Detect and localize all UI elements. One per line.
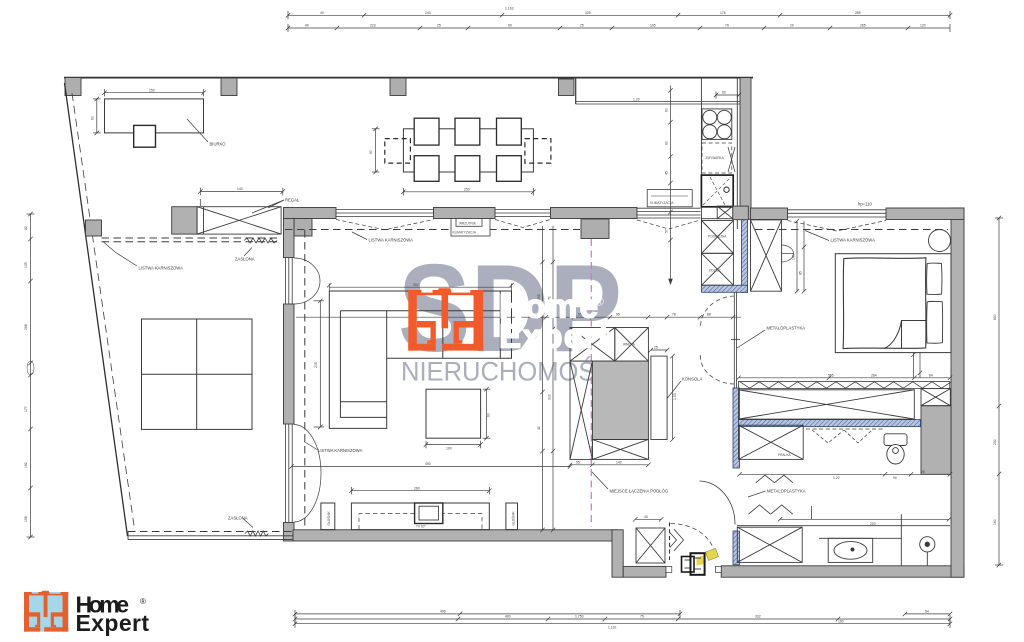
svg-text:85: 85 (799, 271, 803, 275)
svg-text:REGAŁ: REGAŁ (285, 198, 300, 203)
svg-text:40: 40 (320, 11, 324, 15)
svg-text:LISTWA KARNISZOWA: LISTWA KARNISZOWA (831, 238, 876, 243)
svg-text:490: 490 (505, 615, 511, 619)
svg-text:60: 60 (665, 108, 669, 112)
svg-text:40: 40 (644, 515, 648, 519)
svg-text:95: 95 (616, 313, 620, 317)
svg-text:20: 20 (790, 24, 794, 28)
svg-text:90: 90 (508, 24, 512, 28)
svg-text:1.163: 1.163 (505, 7, 514, 11)
svg-text:260: 260 (414, 487, 420, 491)
svg-text:26: 26 (921, 470, 925, 474)
svg-text:160: 160 (993, 519, 997, 525)
svg-text:595: 595 (828, 373, 834, 377)
svg-text:60: 60 (487, 413, 491, 417)
svg-text:90: 90 (893, 476, 897, 480)
svg-text:60: 60 (722, 91, 726, 95)
svg-text:METALOPLASTYKA: METALOPLASTYKA (767, 326, 806, 331)
svg-text:75: 75 (640, 615, 644, 619)
svg-text:332: 332 (755, 615, 761, 619)
svg-text:496: 496 (440, 610, 446, 614)
svg-text:150: 150 (149, 89, 155, 93)
svg-text:ODZIEŻ: ODZIEŻ (709, 268, 721, 273)
svg-text:490: 490 (425, 462, 431, 466)
svg-text:84: 84 (929, 373, 933, 377)
svg-text:1.22: 1.22 (833, 476, 840, 480)
svg-text:176: 176 (720, 11, 726, 15)
svg-text:54: 54 (925, 610, 929, 614)
svg-text:TV 60″: TV 60″ (416, 525, 427, 529)
svg-text:243: 243 (425, 11, 431, 15)
svg-text:177: 177 (24, 406, 28, 412)
svg-text:78: 78 (672, 313, 676, 317)
svg-text:165: 165 (650, 24, 656, 28)
svg-text:GŁOŚNIK: GŁOŚNIK (511, 510, 516, 525)
svg-text:264: 264 (871, 373, 877, 377)
svg-text:223: 223 (370, 24, 376, 28)
svg-text:WRZUTNIK: WRZUTNIK (459, 222, 477, 226)
svg-text:230: 230 (993, 439, 997, 445)
svg-text:PRALKA: PRALKA (778, 453, 791, 457)
svg-text:60: 60 (91, 116, 95, 120)
svg-text:LISTWA KARNISZOWA: LISTWA KARNISZOWA (318, 448, 363, 453)
svg-text:325: 325 (585, 11, 591, 15)
svg-text:MIEJSCE ŁĄCZENIA PODŁÓG: MIEJSCE ŁĄCZENIA PODŁÓG (610, 489, 669, 494)
svg-text:WNĘKA: WNĘKA (623, 343, 636, 347)
svg-text:1.753: 1.753 (575, 615, 584, 619)
svg-text:25: 25 (580, 24, 584, 28)
svg-text:hp=110: hp=110 (858, 202, 872, 207)
svg-text:90: 90 (369, 150, 373, 154)
svg-text:650: 650 (993, 314, 997, 320)
svg-text:®: ® (595, 295, 604, 309)
svg-text:140: 140 (616, 460, 622, 464)
svg-text:BIURKO: BIURKO (210, 142, 227, 147)
svg-text:79: 79 (725, 24, 729, 28)
svg-text:GŁOŚNIK: GŁOŚNIK (326, 510, 331, 525)
svg-text:135: 135 (24, 262, 28, 268)
svg-text:158: 158 (24, 516, 28, 522)
svg-text:45: 45 (665, 171, 669, 175)
svg-text:120: 120 (920, 24, 926, 28)
svg-text:100: 100 (446, 447, 452, 451)
svg-text:302: 302 (548, 394, 552, 400)
svg-text:42: 42 (537, 426, 541, 430)
svg-text:57: 57 (665, 229, 669, 233)
svg-text:METALOPLASTYKA: METALOPLASTYKA (767, 489, 806, 494)
svg-text:LISTWA KARNISZOWA: LISTWA KARNISZOWA (369, 238, 414, 243)
svg-text:192: 192 (24, 462, 28, 468)
svg-text:Expert: Expert (499, 318, 609, 355)
svg-text:1.110: 1.110 (608, 626, 616, 630)
svg-text:ZASŁONA: ZASŁONA (228, 516, 248, 521)
svg-text:265: 265 (860, 24, 866, 28)
svg-text:200: 200 (870, 522, 876, 526)
svg-text:40: 40 (305, 24, 309, 28)
svg-text:190: 190 (838, 619, 844, 623)
svg-text:268: 268 (24, 324, 28, 330)
svg-text:PODWÓJNA: PODWÓJNA (708, 234, 727, 239)
svg-text:82: 82 (24, 226, 28, 230)
svg-text:205: 205 (314, 362, 318, 368)
svg-text:140: 140 (237, 187, 243, 191)
svg-text:1.20: 1.20 (633, 98, 640, 102)
svg-text:302: 302 (413, 283, 419, 287)
svg-text:®: ® (140, 597, 146, 606)
svg-text:ZASŁONA: ZASŁONA (235, 257, 255, 262)
svg-text:LISTWA KARNISZOWA: LISTWA KARNISZOWA (139, 266, 184, 271)
svg-text:ZMYWARKA: ZMYWARKA (706, 156, 725, 160)
svg-text:250: 250 (464, 187, 470, 191)
svg-text:25: 25 (437, 24, 441, 28)
svg-text:1.53: 1.53 (673, 393, 677, 400)
svg-text:88: 88 (707, 313, 711, 317)
svg-text:KLIMATYZACJA: KLIMATYZACJA (453, 231, 477, 235)
svg-text:KONSOLA: KONSOLA (682, 377, 702, 382)
svg-text:285: 285 (855, 11, 861, 15)
svg-text:25: 25 (654, 346, 658, 350)
svg-text:60: 60 (665, 141, 669, 145)
svg-text:55: 55 (576, 460, 580, 464)
svg-text:Expert: Expert (76, 610, 150, 636)
svg-text:140: 140 (792, 254, 796, 260)
